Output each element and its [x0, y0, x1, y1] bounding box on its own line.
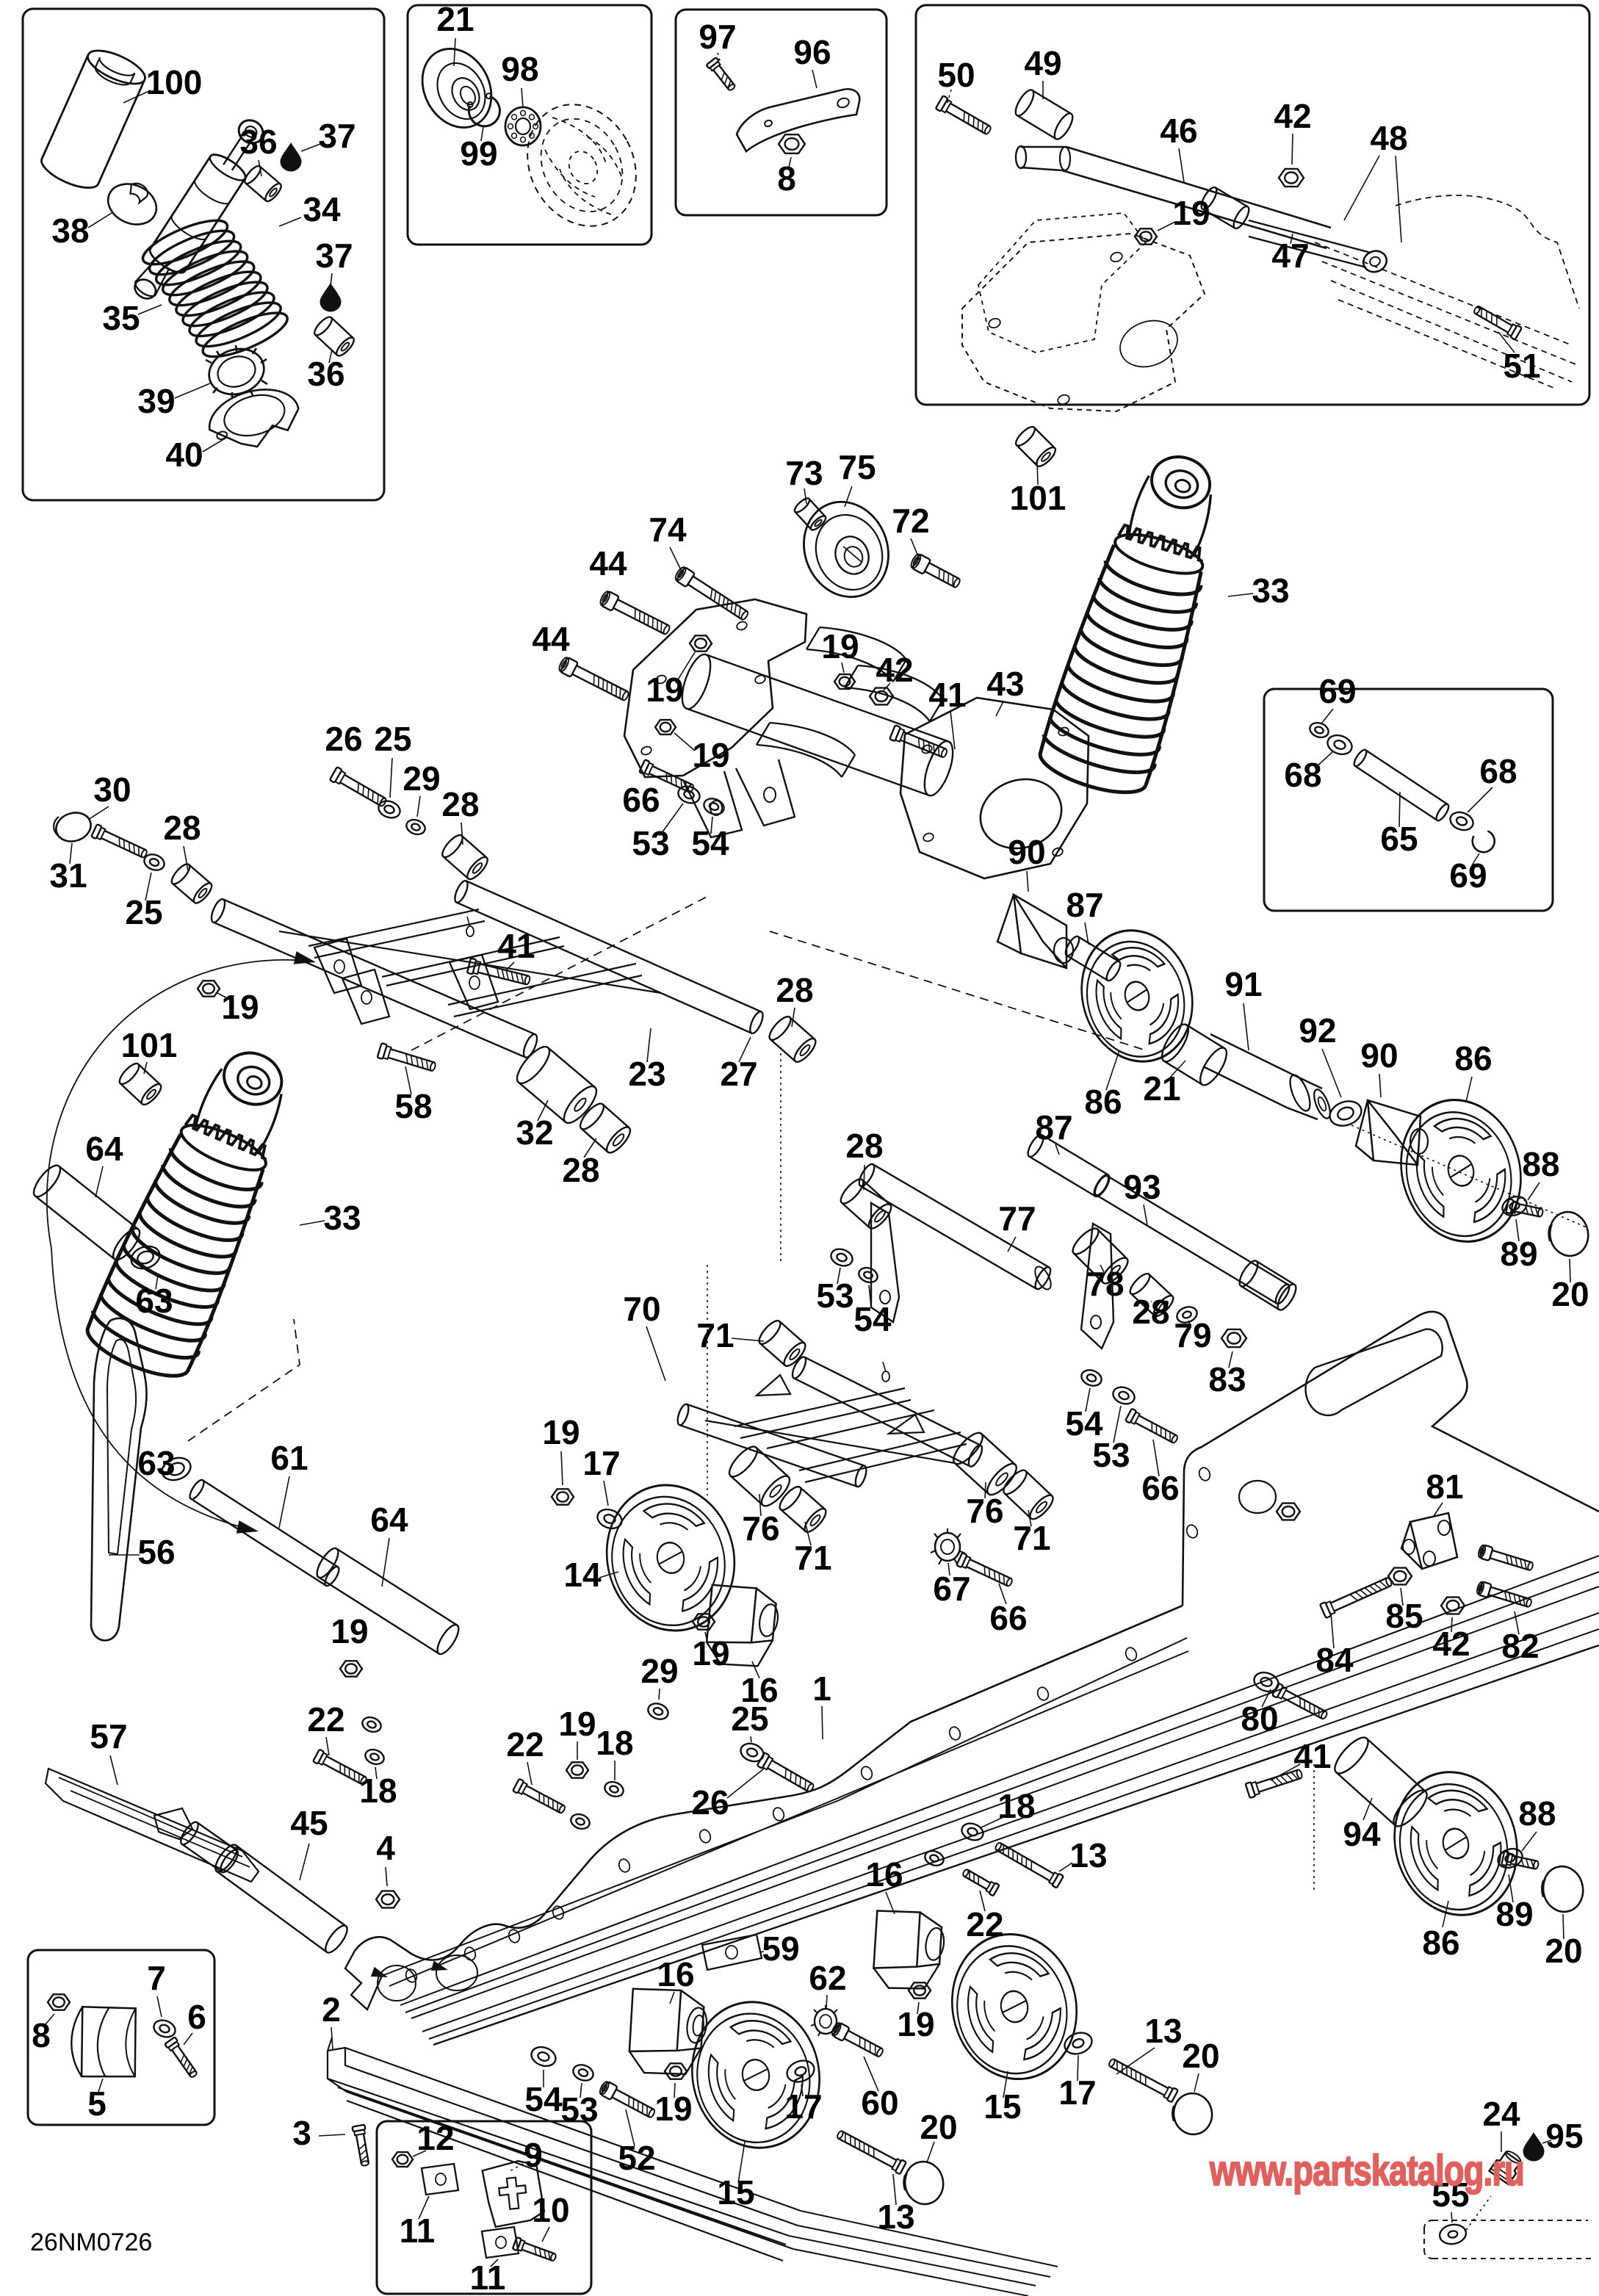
svg-text:11: 11	[470, 2259, 506, 2296]
svg-text:19: 19	[542, 1413, 580, 1451]
svg-text:36: 36	[239, 123, 277, 161]
svg-text:61: 61	[270, 1439, 308, 1477]
svg-text:43: 43	[986, 665, 1024, 703]
svg-text:19: 19	[821, 627, 859, 665]
svg-text:3: 3	[292, 2114, 311, 2152]
svg-text:8: 8	[777, 159, 796, 198]
svg-text:40: 40	[165, 436, 203, 474]
svg-text:26: 26	[325, 720, 362, 758]
svg-text:67: 67	[933, 1570, 970, 1608]
svg-text:33: 33	[323, 1199, 361, 1237]
svg-text:90: 90	[1360, 1036, 1398, 1075]
svg-text:52: 52	[618, 2139, 655, 2177]
svg-text:56: 56	[137, 1533, 175, 1571]
svg-text:66: 66	[1141, 1469, 1179, 1507]
svg-text:11: 11	[400, 2212, 436, 2250]
svg-text:28: 28	[776, 971, 813, 1009]
svg-text:25: 25	[374, 720, 411, 758]
svg-text:88: 88	[1522, 1145, 1559, 1183]
svg-text:21: 21	[1143, 1069, 1180, 1108]
svg-text:37: 37	[318, 117, 355, 155]
svg-text:86: 86	[1084, 1083, 1122, 1121]
svg-text:54: 54	[691, 824, 729, 862]
svg-text:42: 42	[876, 651, 913, 689]
svg-text:13: 13	[1069, 1836, 1107, 1874]
svg-text:20: 20	[1182, 2037, 1219, 2075]
svg-text:87: 87	[1035, 1108, 1072, 1147]
svg-text:45: 45	[290, 1804, 328, 1842]
svg-text:25: 25	[125, 893, 162, 931]
svg-text:98: 98	[501, 50, 538, 88]
svg-text:20: 20	[920, 2108, 957, 2146]
svg-text:53: 53	[1092, 1436, 1130, 1474]
svg-text:41: 41	[497, 927, 535, 965]
svg-text:37: 37	[315, 237, 353, 275]
svg-text:33: 33	[1252, 571, 1289, 610]
svg-text:88: 88	[1518, 1794, 1556, 1833]
svg-text:101: 101	[121, 1026, 178, 1064]
svg-text:18: 18	[997, 1787, 1035, 1825]
svg-text:39: 39	[137, 382, 175, 420]
svg-text:30: 30	[93, 770, 131, 809]
svg-text:28: 28	[562, 1151, 599, 1189]
svg-text:13: 13	[1144, 2012, 1182, 2050]
svg-text:19: 19	[558, 1705, 596, 1743]
svg-text:86: 86	[1454, 1039, 1492, 1077]
svg-text:53: 53	[816, 1277, 853, 1315]
svg-text:19: 19	[1172, 194, 1210, 232]
svg-text:94: 94	[1343, 1815, 1381, 1853]
svg-text:81: 81	[1426, 1468, 1463, 1506]
svg-text:35: 35	[102, 299, 140, 337]
svg-text:62: 62	[809, 1959, 846, 1997]
svg-text:16: 16	[865, 1855, 903, 1894]
svg-text:7: 7	[147, 1959, 166, 1997]
svg-text:14: 14	[563, 1556, 602, 1594]
svg-text:41: 41	[928, 676, 966, 714]
svg-text:19: 19	[692, 736, 729, 774]
svg-text:38: 38	[51, 212, 89, 250]
svg-text:73: 73	[785, 454, 823, 492]
svg-text:70: 70	[623, 1290, 660, 1328]
svg-text:44: 44	[589, 544, 627, 582]
svg-text:36: 36	[307, 355, 344, 393]
svg-text:21: 21	[436, 0, 474, 38]
svg-text:79: 79	[1174, 1316, 1211, 1354]
svg-text:42: 42	[1274, 97, 1311, 135]
svg-text:4: 4	[376, 1829, 395, 1867]
svg-text:1: 1	[812, 1669, 831, 1708]
svg-text:71: 71	[1013, 1519, 1050, 1557]
svg-text:74: 74	[649, 510, 687, 549]
svg-text:34: 34	[303, 190, 341, 228]
svg-text:66: 66	[989, 1599, 1027, 1637]
svg-text:80: 80	[1241, 1700, 1278, 1738]
svg-text:29: 29	[640, 1652, 678, 1690]
svg-text:77: 77	[998, 1199, 1036, 1238]
svg-text:64: 64	[85, 1130, 123, 1168]
svg-text:84: 84	[1315, 1641, 1354, 1679]
svg-text:19: 19	[897, 2005, 934, 2043]
svg-text:27: 27	[720, 1055, 757, 1093]
svg-text:29: 29	[403, 759, 440, 798]
svg-text:26NM0726: 26NM0726	[30, 2228, 152, 2256]
svg-text:17: 17	[582, 1444, 620, 1482]
svg-text:19: 19	[221, 988, 259, 1026]
svg-text:83: 83	[1208, 1360, 1246, 1398]
svg-text:92: 92	[1299, 1011, 1336, 1050]
svg-text:5: 5	[87, 2084, 107, 2123]
svg-text:6: 6	[187, 1998, 206, 2036]
svg-text:28: 28	[1132, 1293, 1169, 1331]
svg-text:15: 15	[983, 2087, 1021, 2126]
svg-text:16: 16	[657, 1955, 694, 1993]
svg-text:18: 18	[596, 1724, 633, 1762]
svg-text:15: 15	[717, 2173, 754, 2212]
svg-text:57: 57	[90, 1717, 127, 1755]
svg-text:19: 19	[692, 1634, 729, 1672]
svg-text:66: 66	[622, 781, 660, 819]
svg-text:46: 46	[1160, 112, 1197, 150]
svg-text:9: 9	[524, 2136, 543, 2174]
svg-text:63: 63	[135, 1282, 173, 1320]
svg-text:28: 28	[845, 1127, 883, 1165]
svg-text:48: 48	[1370, 119, 1407, 157]
svg-text:96: 96	[793, 33, 831, 71]
svg-text:51: 51	[1503, 347, 1540, 385]
svg-text:17: 17	[784, 2087, 822, 2126]
svg-text:69: 69	[1449, 856, 1487, 895]
svg-text:25: 25	[731, 1700, 768, 1738]
svg-text:91: 91	[1224, 965, 1262, 1003]
svg-text:41: 41	[1293, 1737, 1331, 1775]
svg-text:87: 87	[1066, 886, 1103, 924]
svg-text:32: 32	[516, 1113, 553, 1152]
svg-text:78: 78	[1086, 1265, 1124, 1303]
svg-text:63: 63	[137, 1444, 175, 1482]
svg-text:82: 82	[1501, 1627, 1539, 1665]
svg-text:99: 99	[460, 134, 497, 173]
svg-text:28: 28	[163, 809, 201, 847]
svg-text:28: 28	[441, 785, 479, 823]
svg-text:100: 100	[146, 63, 203, 101]
svg-text:19: 19	[646, 671, 683, 709]
svg-text:68: 68	[1284, 756, 1321, 794]
svg-text:50: 50	[937, 56, 975, 94]
svg-text:86: 86	[1422, 1924, 1459, 1962]
svg-text:69: 69	[1318, 672, 1356, 710]
svg-text:72: 72	[892, 502, 929, 540]
svg-text:24: 24	[1482, 2095, 1520, 2133]
svg-text:44: 44	[532, 620, 570, 658]
svg-text:49: 49	[1024, 44, 1061, 82]
svg-text:85: 85	[1385, 1597, 1423, 1635]
svg-text:19: 19	[331, 1612, 368, 1650]
svg-text:19: 19	[654, 2090, 692, 2128]
svg-text:60: 60	[861, 2084, 898, 2122]
svg-text:71: 71	[696, 1316, 734, 1354]
svg-text:90: 90	[1008, 833, 1045, 871]
svg-text:64: 64	[370, 1501, 408, 1539]
svg-text:22: 22	[307, 1700, 344, 1739]
svg-text:93: 93	[1123, 1168, 1161, 1206]
svg-text:2: 2	[322, 1990, 341, 2029]
svg-text:22: 22	[506, 1725, 544, 1763]
svg-text:89: 89	[1495, 1895, 1533, 1933]
svg-text:53: 53	[560, 2090, 598, 2129]
svg-text:54: 54	[853, 1300, 892, 1338]
svg-text:26: 26	[691, 1783, 729, 1822]
svg-text:68: 68	[1479, 752, 1517, 790]
svg-text:97: 97	[699, 18, 736, 56]
svg-text:10: 10	[532, 2191, 569, 2229]
svg-text:59: 59	[762, 1929, 799, 1968]
svg-text:31: 31	[49, 856, 87, 895]
svg-text:www.partskatalog.ru: www.partskatalog.ru	[1209, 2147, 1524, 2195]
svg-text:75: 75	[838, 448, 876, 486]
svg-text:58: 58	[394, 1087, 432, 1125]
svg-text:71: 71	[794, 1539, 831, 1577]
svg-text:95: 95	[1545, 2117, 1583, 2155]
